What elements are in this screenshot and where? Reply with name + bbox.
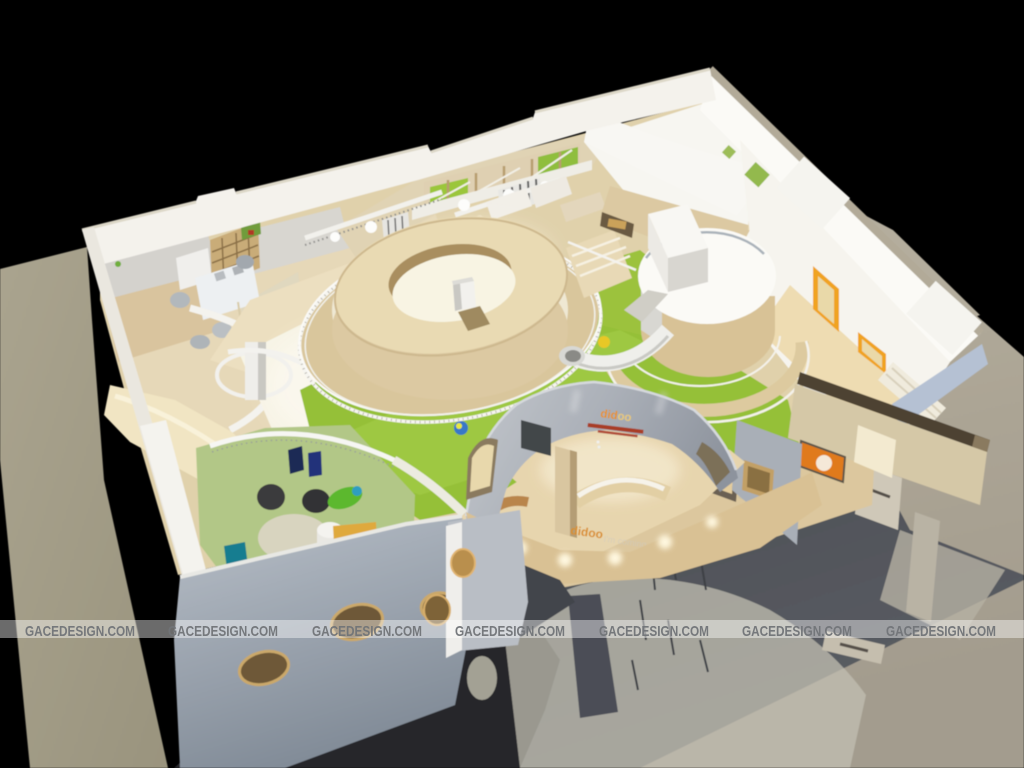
svg-text:GACEDESIGN.COM: GACEDESIGN.COM <box>312 623 422 640</box>
svg-text:GACEDESIGN.COM: GACEDESIGN.COM <box>168 623 278 640</box>
svg-text:GACEDESIGN.COM: GACEDESIGN.COM <box>742 623 852 640</box>
svg-text:GACEDESIGN.COM: GACEDESIGN.COM <box>455 623 565 640</box>
svg-text:GACEDESIGN.COM: GACEDESIGN.COM <box>25 623 135 640</box>
svg-text:GACEDESIGN.COM: GACEDESIGN.COM <box>599 623 709 640</box>
svg-text:GACEDESIGN.COM: GACEDESIGN.COM <box>886 623 996 640</box>
